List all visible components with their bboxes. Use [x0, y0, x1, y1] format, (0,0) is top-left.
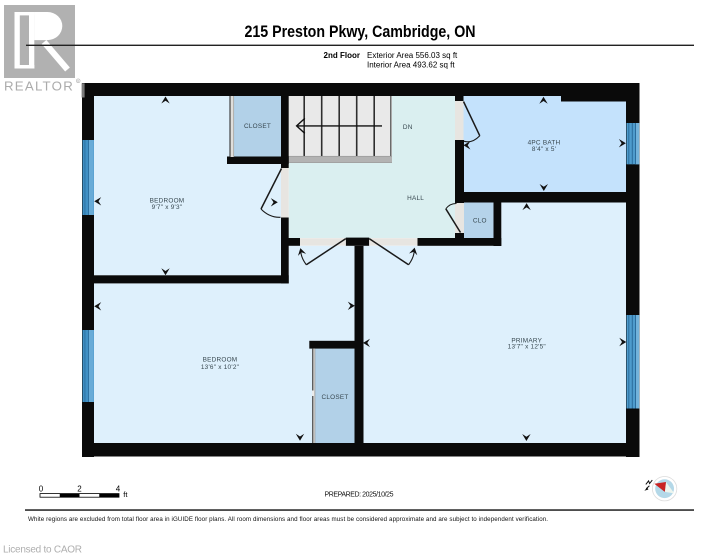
svg-text:White regions are excluded fro: White regions are excluded from total fl…: [28, 516, 548, 523]
svg-text:0: 0: [39, 484, 44, 493]
svg-text:DN: DN: [403, 124, 413, 131]
svg-text:215 Preston Pkwy, Cambridge, O: 215 Preston Pkwy, Cambridge, ON: [245, 23, 476, 41]
svg-text:CLOSET: CLOSET: [321, 394, 348, 401]
svg-text:9'7" x 9'3": 9'7" x 9'3": [152, 204, 183, 211]
svg-text:13'7" x 12'5": 13'7" x 12'5": [508, 344, 546, 351]
svg-text:2: 2: [77, 484, 82, 493]
svg-text:2nd Floor: 2nd Floor: [324, 51, 360, 60]
svg-text:CLO: CLO: [473, 218, 487, 225]
svg-text:4: 4: [116, 484, 121, 493]
svg-text:Interior Area 493.62 sq ft: Interior Area 493.62 sq ft: [367, 61, 455, 70]
svg-text:REALTOR: REALTOR: [4, 79, 74, 94]
svg-text:Exterior Area 556.03 sq ft: Exterior Area 556.03 sq ft: [367, 51, 458, 60]
svg-text:PREPARED: 2025/10/25: PREPARED: 2025/10/25: [325, 492, 394, 499]
svg-text:CLOSET: CLOSET: [244, 123, 271, 130]
svg-text:BEDROOM: BEDROOM: [203, 356, 238, 363]
svg-text:HALL: HALL: [407, 195, 424, 202]
svg-text:8'4" x 5': 8'4" x 5': [532, 146, 556, 153]
svg-text:Licensed to CAOR: Licensed to CAOR: [3, 545, 82, 555]
svg-text:13'6" x 10'2": 13'6" x 10'2": [201, 364, 239, 371]
